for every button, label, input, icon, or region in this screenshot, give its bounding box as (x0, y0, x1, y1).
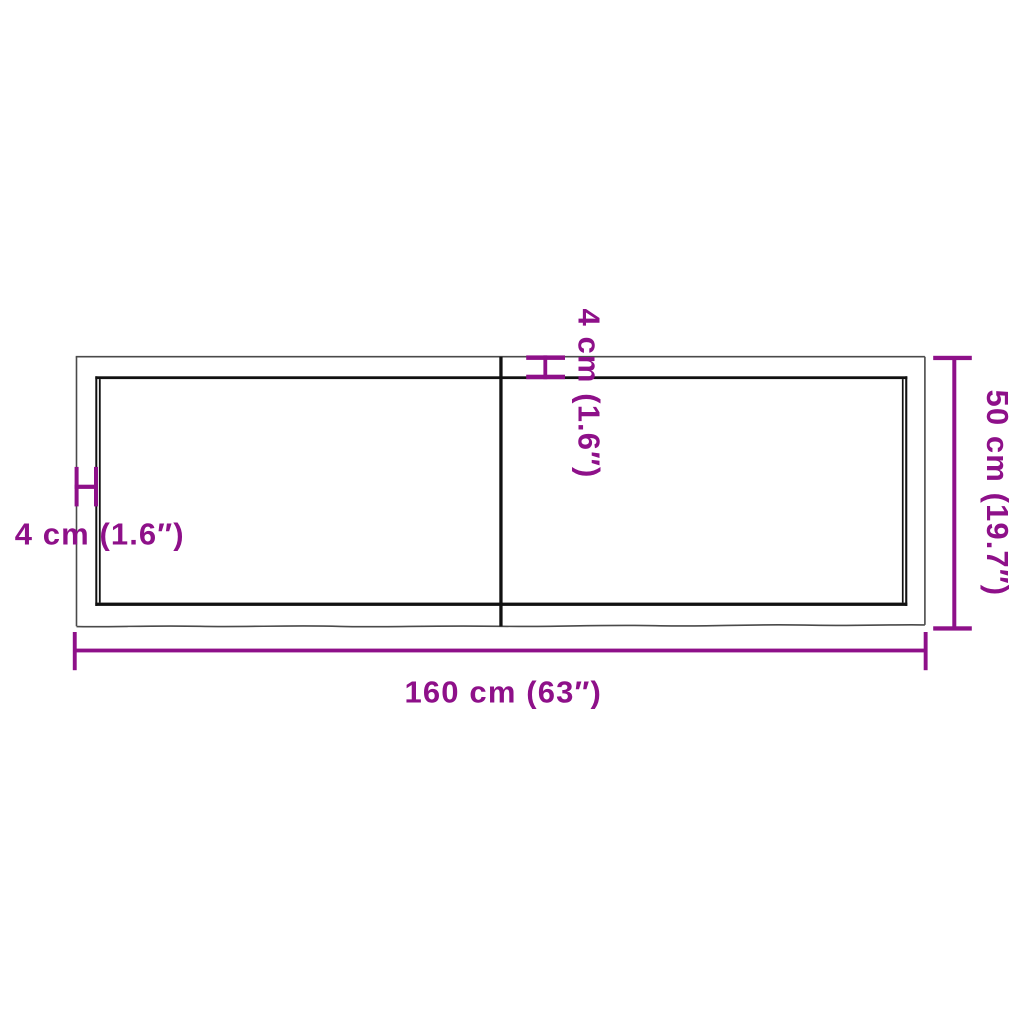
svg-text:4 cm (1.6″): 4 cm (1.6″) (15, 517, 185, 552)
svg-text:50 cm (19.7″): 50 cm (19.7″) (980, 390, 1015, 597)
svg-text:160 cm (63″): 160 cm (63″) (405, 675, 603, 710)
svg-text:4 cm (1.6″): 4 cm (1.6″) (572, 309, 607, 479)
